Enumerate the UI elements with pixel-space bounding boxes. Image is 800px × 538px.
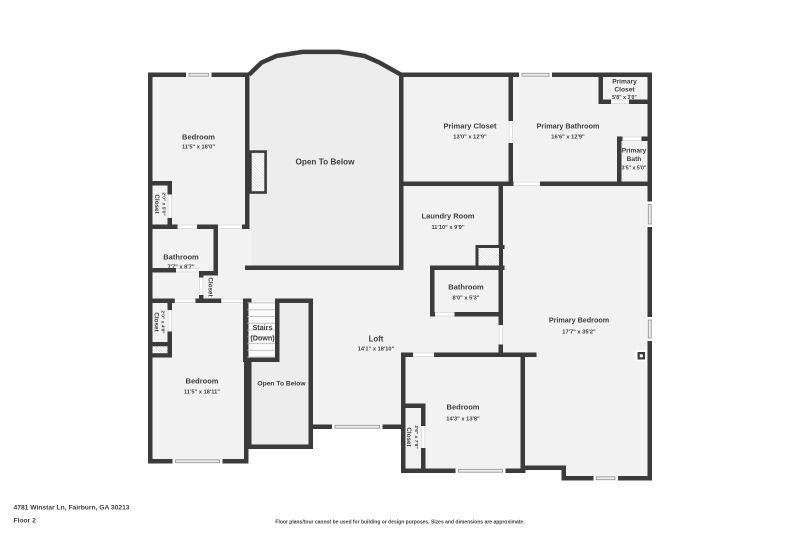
svg-text:Primary: Primary: [612, 79, 637, 86]
svg-text:Bedroom: Bedroom: [186, 377, 219, 386]
svg-text:Bath: Bath: [627, 156, 642, 163]
svg-text:Bedroom: Bedroom: [182, 133, 215, 142]
svg-text:Floor plans/tour cannot be use: Floor plans/tour cannot be used for buil…: [275, 520, 525, 526]
svg-text:Closet: Closet: [153, 194, 160, 214]
svg-text:Primary Closet: Primary Closet: [444, 122, 497, 131]
svg-text:14'3" x 13'8": 14'3" x 13'8": [446, 417, 480, 423]
svg-text:Laundry Room: Laundry Room: [422, 212, 475, 221]
svg-text:13'0" x 12'9": 13'0" x 12'9": [453, 135, 487, 141]
svg-text:8'0" x 5'3": 8'0" x 5'3": [452, 296, 479, 302]
svg-text:2'0" x 4'8": 2'0" x 4'8": [160, 310, 166, 333]
svg-text:11'5" x 18'0": 11'5" x 18'0": [182, 145, 215, 151]
svg-text:2'6" x 7'8": 2'6" x 7'8": [413, 425, 419, 448]
svg-text:Loft: Loft: [369, 335, 384, 344]
svg-text:11'10" x 9'9": 11'10" x 9'9": [431, 225, 464, 231]
svg-text:Floor 2: Floor 2: [14, 518, 37, 525]
svg-text:Open To Below: Open To Below: [257, 381, 306, 388]
svg-text:(Down): (Down): [250, 334, 275, 343]
svg-text:4781 Winstar Ln, Fairburn, GA: 4781 Winstar Ln, Fairburn, GA 30213: [14, 505, 130, 512]
svg-text:16'6" x 12'9": 16'6" x 12'9": [551, 135, 585, 141]
svg-text:Stairs: Stairs: [253, 323, 273, 332]
svg-text:Closet: Closet: [405, 427, 412, 447]
svg-text:17'7" x 35'2": 17'7" x 35'2": [562, 330, 596, 336]
svg-text:11'5" x 18'11": 11'5" x 18'11": [184, 390, 220, 396]
svg-text:Closet: Closet: [152, 312, 159, 332]
svg-text:Bathroom: Bathroom: [448, 283, 484, 292]
svg-text:Open To Below: Open To Below: [296, 158, 356, 167]
svg-text:7'7" x 8'7": 7'7" x 8'7": [167, 265, 194, 271]
svg-text:Bedroom: Bedroom: [447, 403, 480, 412]
svg-text:2'0" x 5'0": 2'0" x 5'0": [161, 192, 167, 215]
svg-text:Closet: Closet: [206, 277, 213, 297]
svg-text:Primary Bathroom: Primary Bathroom: [537, 122, 600, 131]
svg-text:5'8" x 3'0": 5'8" x 3'0": [612, 95, 637, 101]
svg-text:3'5" x 5'0": 3'5" x 5'0": [622, 166, 647, 172]
svg-text:14'1" x 18'10": 14'1" x 18'10": [358, 347, 395, 353]
svg-text:Closet: Closet: [614, 87, 635, 94]
svg-text:Primary Bedroom: Primary Bedroom: [549, 316, 609, 325]
svg-text:Bathroom: Bathroom: [163, 253, 199, 262]
svg-text:Primary: Primary: [622, 148, 647, 155]
